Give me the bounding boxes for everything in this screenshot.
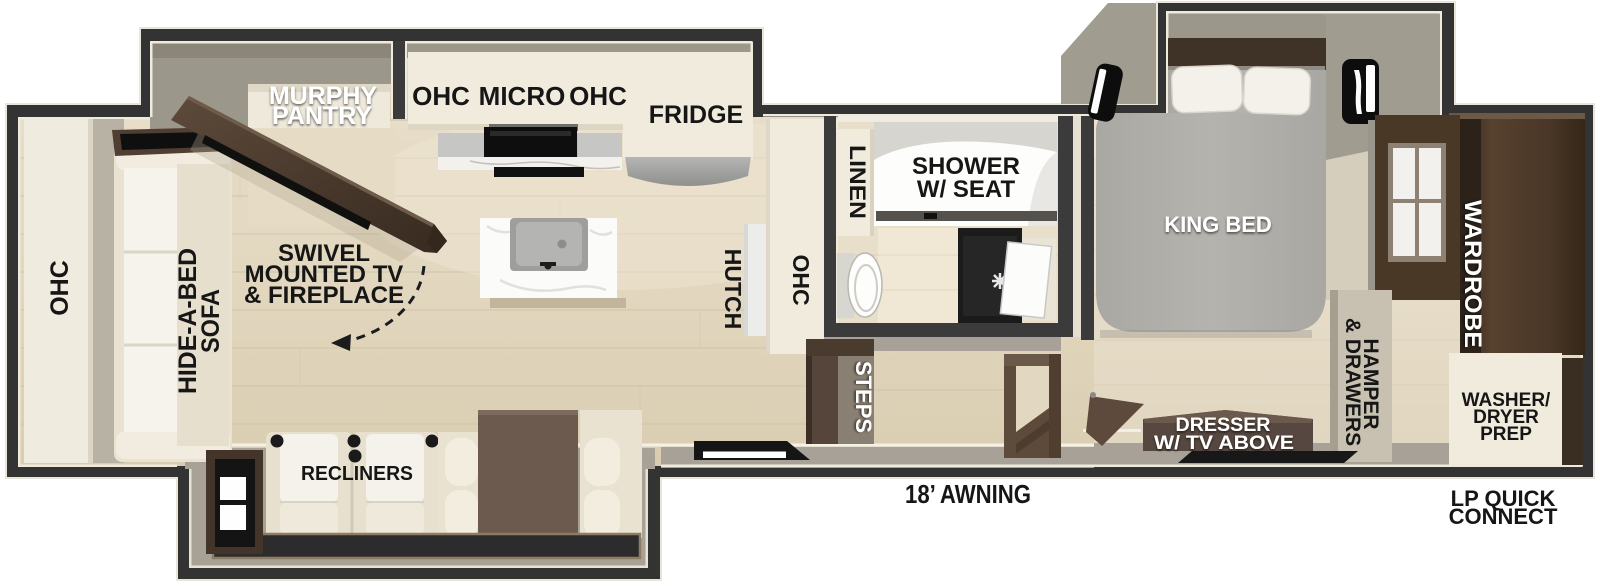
svg-text:OHC: OHC [412,81,470,111]
svg-text:& FIREPLACE: & FIREPLACE [244,282,404,309]
svg-text:OHC: OHC [788,254,814,305]
svg-text:W/ SEAT: W/ SEAT [917,176,1016,203]
svg-text:KING BED: KING BED [1164,212,1272,237]
svg-text:& DRAWERS: & DRAWERS [1341,318,1364,446]
svg-text:OHC: OHC [46,260,74,316]
svg-text:RECLINERS: RECLINERS [301,463,413,485]
svg-text:FRIDGE: FRIDGE [649,101,743,129]
svg-text:MICRO: MICRO [479,81,566,111]
svg-text:PREP: PREP [1480,424,1532,445]
svg-text:SOFA: SOFA [197,289,225,353]
svg-text:OHC: OHC [569,81,627,111]
svg-text:WARDROBE: WARDROBE [1459,200,1486,348]
svg-text:LINEN: LINEN [845,145,870,219]
svg-text:CONNECT: CONNECT [1449,504,1558,529]
svg-text:PANTRY: PANTRY [272,102,372,130]
svg-text:HUTCH: HUTCH [720,249,746,330]
svg-text:W/ TV ABOVE: W/ TV ABOVE [1154,433,1294,454]
svg-text:18’ AWNING: 18’ AWNING [905,479,1031,509]
svg-text:STEPS: STEPS [851,361,876,433]
